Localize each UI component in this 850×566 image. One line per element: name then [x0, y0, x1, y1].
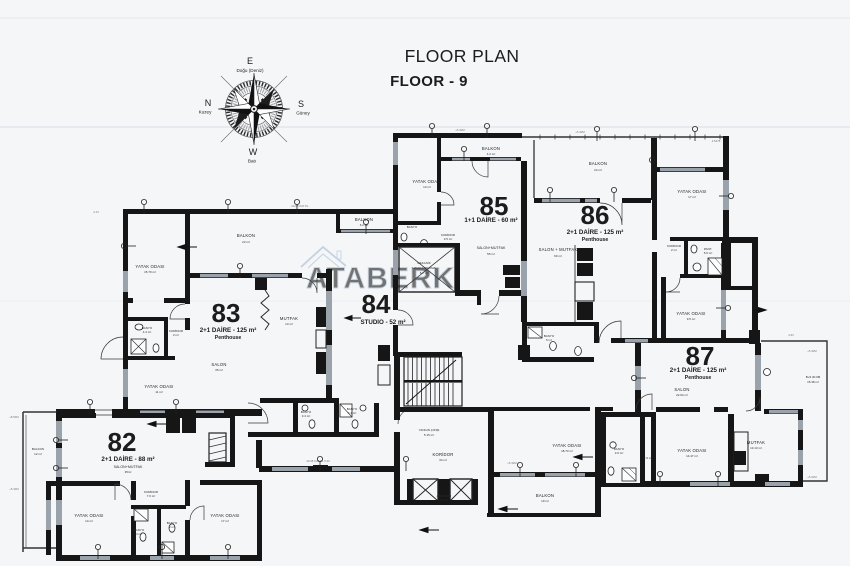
svg-text:55 m²: 55 m²: [487, 252, 495, 256]
svg-text:4.5278: 4.5278: [712, 139, 721, 143]
svg-text:+5.30M: +5.30M: [575, 130, 585, 134]
svg-text:+5.30M: +5.30M: [455, 128, 465, 132]
svg-text:4.4 m²: 4.4 m²: [143, 330, 152, 334]
svg-text:35 m²: 35 m²: [215, 368, 223, 372]
svg-text:2+1 DAİRE - 125 m²: 2+1 DAİRE - 125 m²: [567, 229, 624, 236]
svg-text:FLOOR PLAN: FLOOR PLAN: [405, 46, 520, 66]
svg-text:+5.30M: +5.30M: [507, 461, 517, 465]
svg-text:13 m²: 13 m²: [423, 185, 431, 189]
svg-text:5.15 m²: 5.15 m²: [424, 433, 434, 437]
svg-text:22.04 m²: 22.04 m²: [676, 393, 688, 397]
svg-text:2 m²: 2 m²: [169, 525, 175, 529]
svg-text:2 m²: 2 m²: [671, 248, 677, 252]
svg-text:YATAK ODASI: YATAK ODASI: [135, 264, 164, 269]
svg-text:4.9 m²: 4.9 m²: [440, 498, 449, 502]
svg-text:18.73 m²: 18.73 m²: [561, 449, 573, 453]
svg-text:SALON: SALON: [211, 362, 226, 367]
svg-text:BALKON: BALKON: [589, 161, 607, 166]
svg-text:SALON + MUTFAK: SALON + MUTFAK: [539, 247, 578, 252]
svg-text:82: 82: [108, 427, 137, 457]
svg-text:5.6 m²: 5.6 m²: [704, 251, 713, 255]
svg-text:BALKON: BALKON: [536, 493, 554, 498]
svg-text:YATAK ODASI: YATAK ODASI: [144, 384, 173, 389]
svg-text:Doğu (Deniz): Doğu (Deniz): [236, 68, 264, 73]
svg-text:84: 84: [362, 289, 391, 319]
svg-text:SALON+MUTFAK: SALON+MUTFAK: [114, 465, 143, 469]
svg-text:19 m²: 19 m²: [541, 499, 549, 503]
svg-text:5.7 m²: 5.7 m²: [420, 271, 429, 275]
svg-text:STUDIO - 52 m²: STUDIO - 52 m²: [360, 319, 405, 326]
svg-text:E: E: [247, 56, 253, 66]
svg-text:2+1 DAİRE - 125 m²: 2+1 DAİRE - 125 m²: [200, 327, 257, 334]
svg-text:HAVALANDIRMA: HAVALANDIRMA: [412, 266, 435, 270]
svg-text:17 m²: 17 m²: [688, 195, 696, 199]
svg-text:BALKON: BALKON: [237, 233, 255, 238]
svg-text:+5.00M: +5.00M: [807, 475, 817, 479]
svg-text:+5.30M: +5.30M: [9, 487, 19, 491]
svg-text:YATAK ODASI: YATAK ODASI: [677, 189, 706, 194]
svg-text:14 m²: 14 m²: [85, 519, 93, 523]
svg-text:MUTFAK: MUTFAK: [747, 440, 765, 445]
svg-text:4.63: 4.63: [788, 333, 794, 337]
svg-text:17 m²: 17 m²: [221, 519, 229, 523]
svg-text:34 m²: 34 m²: [439, 458, 447, 462]
svg-text:2+1 DAİRE - 125 m²: 2+1 DAİRE - 125 m²: [670, 367, 727, 374]
svg-text:15.79 m²: 15.79 m²: [144, 270, 156, 274]
svg-text:YATAK ODASI: YATAK ODASI: [552, 443, 581, 448]
svg-text:FLOOR - 9: FLOOR - 9: [390, 73, 468, 90]
svg-text:SALON: SALON: [674, 387, 689, 392]
svg-text:W: W: [249, 147, 258, 157]
svg-text:+5.30M: +5.30M: [807, 349, 817, 353]
svg-text:4 m²: 4 m²: [136, 532, 142, 536]
svg-text:23 m²: 23 m²: [242, 240, 250, 244]
svg-text:B+5.30.0M: B+5.30.0M: [806, 375, 821, 379]
svg-text:KORİDOR: KORİDOR: [433, 452, 454, 457]
svg-text:Kuzey: Kuzey: [199, 110, 212, 115]
svg-text:2+1 DAİRE - 88 m²: 2+1 DAİRE - 88 m²: [101, 456, 154, 463]
svg-text:4.13: 4.13: [93, 210, 99, 214]
svg-text:YATAK ODASI: YATAK ODASI: [412, 179, 441, 184]
svg-text:7.6 m²: 7.6 m²: [147, 494, 156, 498]
svg-text:2 m²: 2 m²: [173, 333, 179, 337]
svg-text:1+1 DAİRE - 60 m²: 1+1 DAİRE - 60 m²: [464, 217, 517, 224]
svg-text:Penthouse: Penthouse: [215, 335, 242, 341]
svg-text:35m²: 35m²: [125, 470, 132, 474]
svg-text:BALKON: BALKON: [32, 447, 44, 451]
svg-text:YATAK ODASI: YATAK ODASI: [676, 311, 705, 316]
svg-text:S: S: [298, 99, 304, 109]
svg-text:29.08 KAT PL: 29.08 KAT PL: [291, 204, 309, 208]
svg-text:24 m²: 24 m²: [594, 168, 602, 172]
svg-text:SALON+MUTFAK: SALON+MUTFAK: [477, 246, 506, 250]
svg-text:YATAK ODASI: YATAK ODASI: [74, 513, 103, 518]
svg-text:13 m²: 13 m²: [285, 322, 293, 326]
svg-text:12 m²: 12 m²: [34, 452, 42, 456]
svg-text:BALKON: BALKON: [355, 217, 373, 222]
svg-text:4.2 m²: 4.2 m²: [487, 152, 496, 156]
svg-text:Güney: Güney: [296, 111, 310, 116]
svg-text:YATAK ODASI: YATAK ODASI: [677, 448, 706, 453]
svg-text:5 m²: 5 m²: [546, 338, 552, 342]
svg-text:3.5 m²: 3.5 m²: [444, 237, 453, 241]
svg-text:60 m²: 60 m²: [554, 254, 562, 258]
svg-text:BANYO: BANYO: [407, 225, 418, 229]
svg-text:15.38 m²: 15.38 m²: [807, 380, 819, 384]
svg-text:9.5 m²: 9.5 m²: [687, 317, 696, 321]
svg-text:YANGIN ÇIKIŞI: YANGIN ÇIKIŞI: [419, 428, 440, 432]
svg-text:MUTFAK: MUTFAK: [280, 316, 298, 321]
svg-text:YATAK ODASI: YATAK ODASI: [210, 513, 239, 518]
svg-text:N: N: [205, 98, 212, 108]
svg-text:14.47 m²: 14.47 m²: [686, 454, 698, 458]
svg-text:+8.50M: +8.50M: [9, 415, 19, 419]
svg-text:Batı: Batı: [248, 159, 256, 164]
svg-text:2.9 m²: 2.9 m²: [644, 456, 653, 460]
svg-text:11 m²: 11 m²: [155, 390, 162, 394]
svg-text:Penthouse: Penthouse: [685, 375, 712, 381]
svg-text:BALKON: BALKON: [482, 146, 500, 151]
svg-text:MEKANİK: MEKANİK: [417, 260, 431, 265]
svg-text:13.13 m²: 13.13 m²: [750, 446, 762, 450]
svg-text:3.6 m²: 3.6 m²: [615, 451, 624, 455]
svg-text:83: 83: [212, 298, 241, 328]
svg-text:3.4 m²: 3.4 m²: [302, 414, 311, 418]
svg-text:4.1 m²: 4.1 m²: [348, 411, 357, 415]
svg-text:Penthouse: Penthouse: [582, 237, 609, 243]
svg-text:86: 86: [581, 200, 610, 230]
